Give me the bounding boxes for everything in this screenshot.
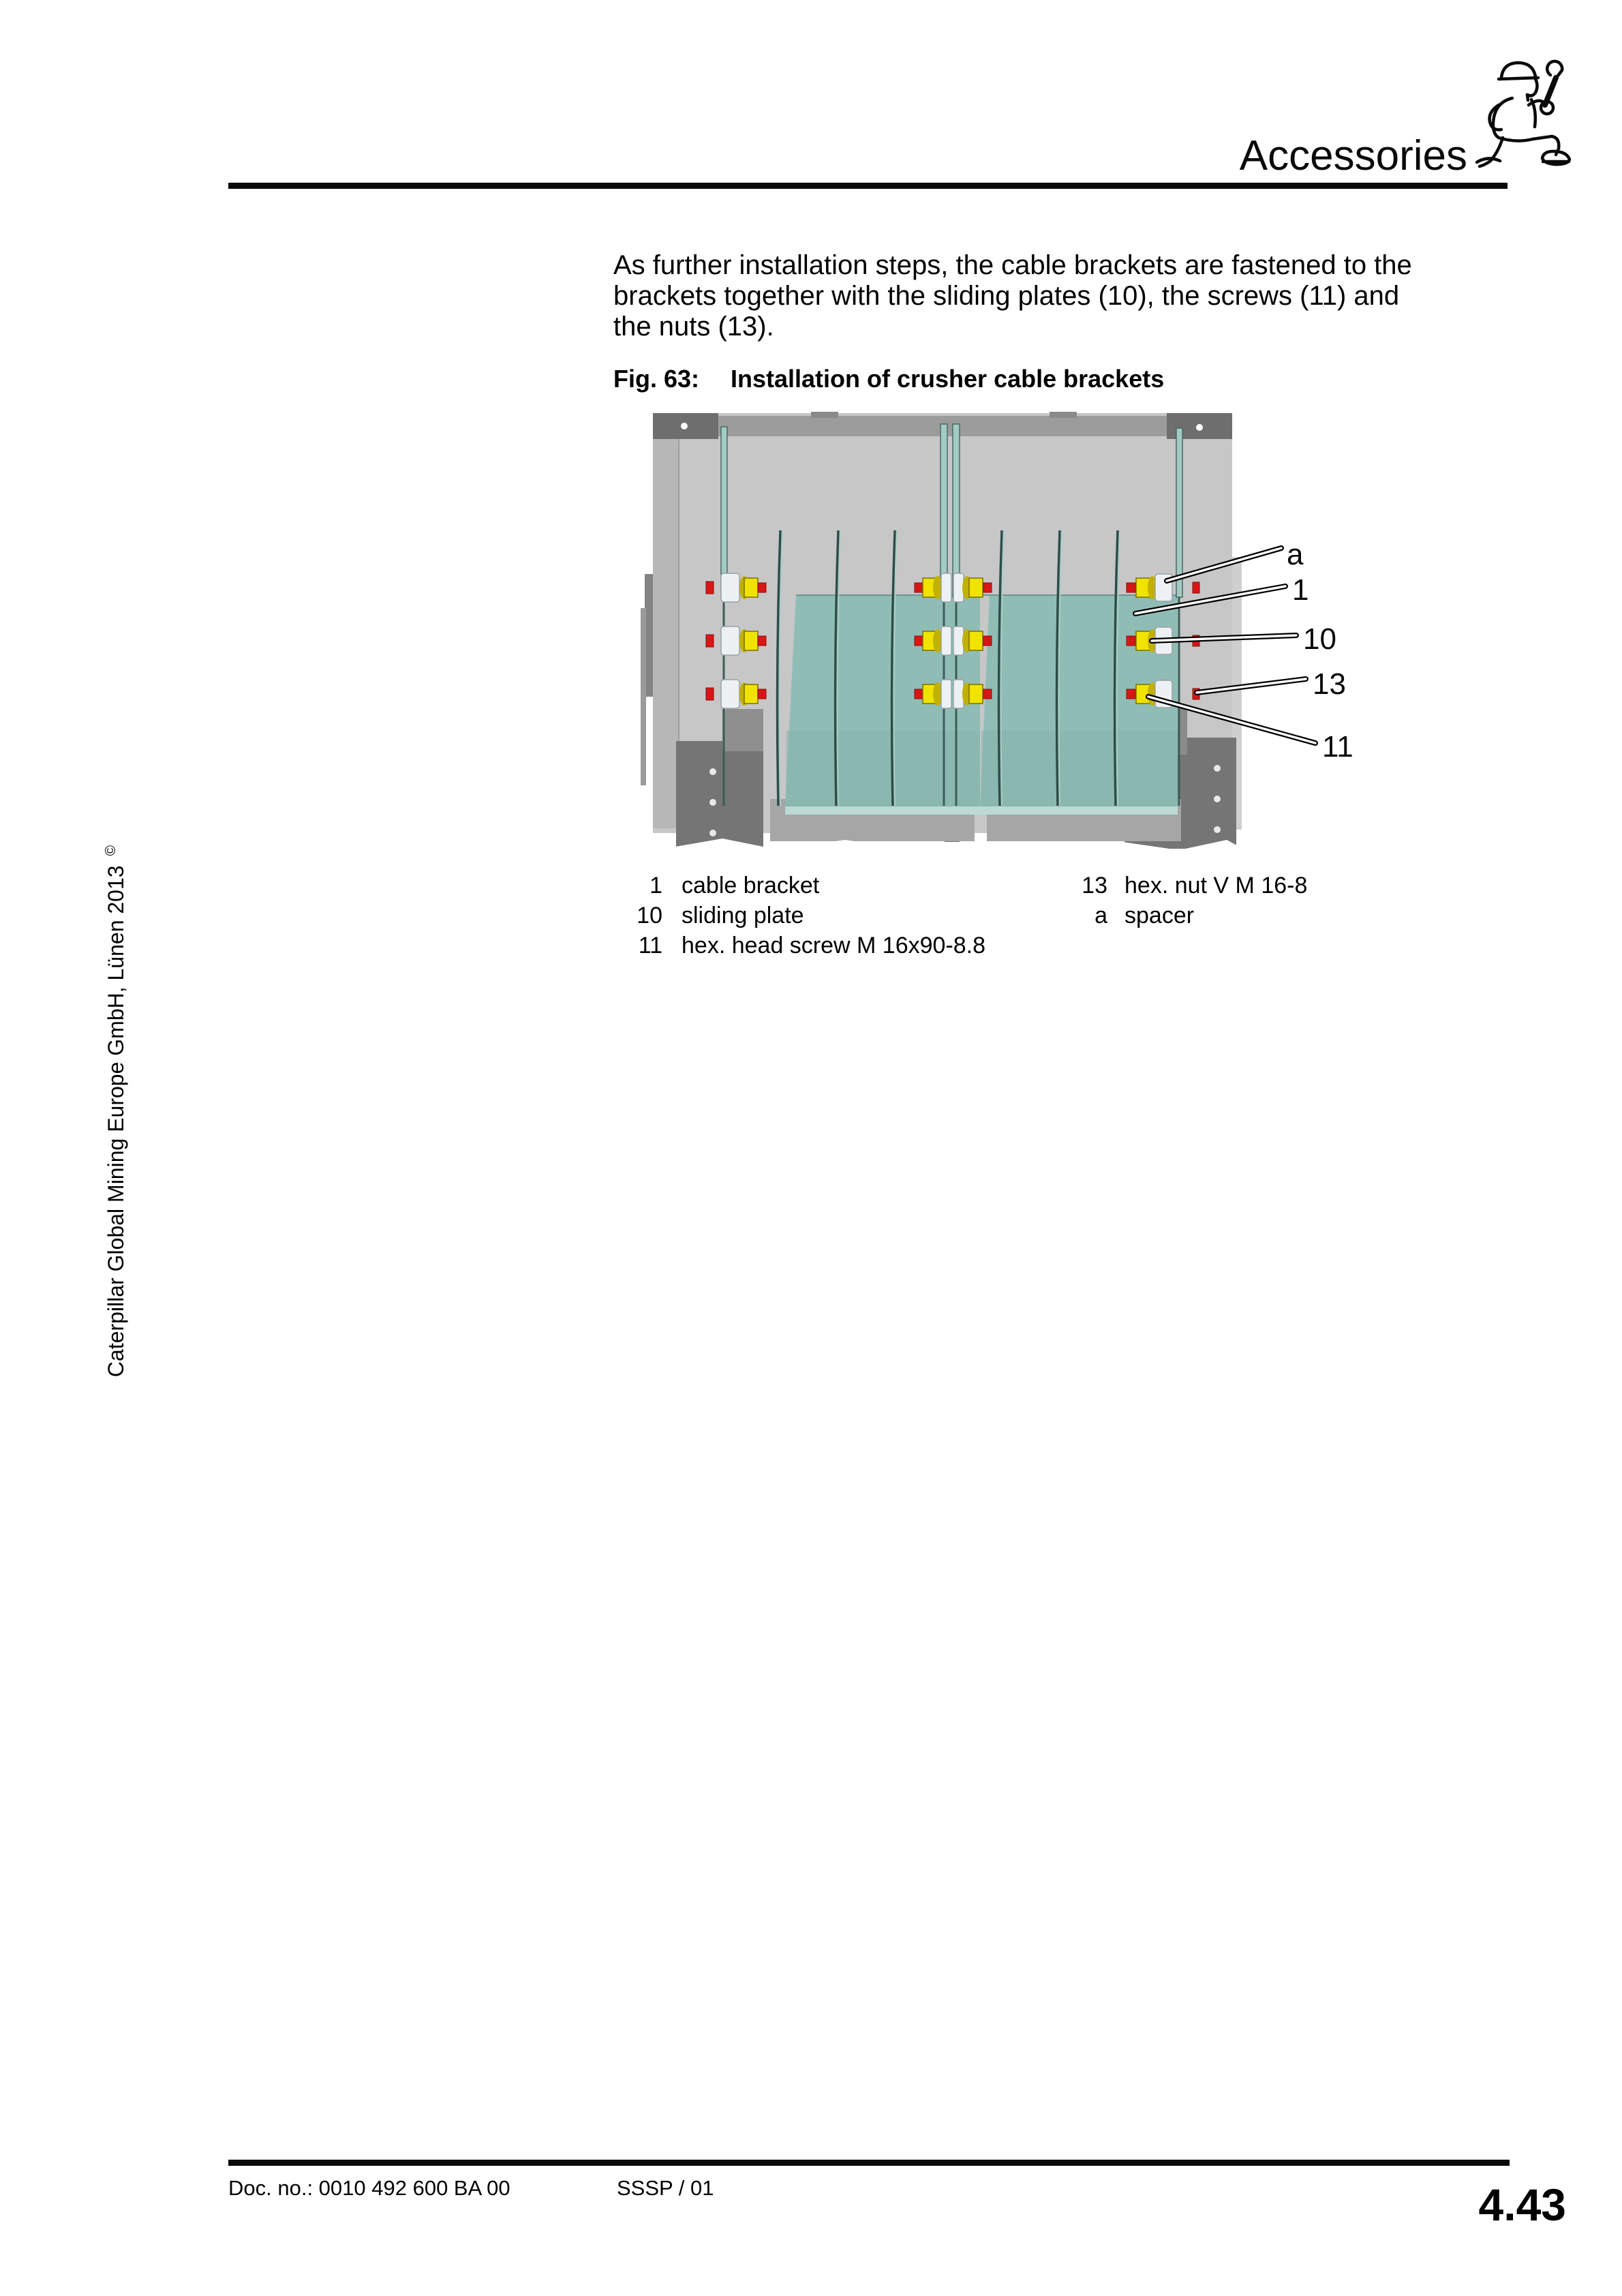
header-rule <box>228 183 1508 189</box>
figure-illustration: a 1 10 13 11 <box>641 404 1370 867</box>
legend-num: 11 <box>624 933 662 958</box>
callout-label-10: 10 <box>1303 622 1336 656</box>
legend-label: cable bracket <box>682 873 819 898</box>
callout-label-1: 1 <box>1292 573 1309 607</box>
callout-label-13: 13 <box>1313 667 1346 701</box>
copyright-symbol: © <box>103 845 119 856</box>
intro-paragraph: As further installation steps, the cable… <box>613 250 1412 342</box>
legend-num: 13 <box>1080 873 1107 898</box>
page-title: Accessories <box>1240 134 1467 178</box>
legend-num: a <box>1080 903 1107 928</box>
page-number: 4.43 <box>1479 2179 1566 2231</box>
figure-caption-label: Fig. 63: <box>613 365 699 393</box>
figure-caption-text: Installation of crusher cable brackets <box>731 365 1164 393</box>
legend-item-1: 1 cable bracket <box>624 873 819 898</box>
legend-item-a: a spacer <box>1080 903 1194 928</box>
legend-item-13: 13 hex. nut V M 16-8 <box>1080 873 1307 898</box>
callout-label-a: a <box>1287 538 1304 571</box>
legend-label: hex. nut V M 16-8 <box>1124 873 1307 898</box>
legend-label: hex. head screw M 16x90-8.8 <box>682 933 985 958</box>
manual-page: Accessories As further installation step… <box>0 0 1622 2296</box>
legend-item-10: 10 sliding plate <box>624 903 804 928</box>
legend-num: 1 <box>624 873 662 898</box>
worker-with-wrench-icon <box>1474 59 1573 169</box>
intro-line-3: the nuts (13). <box>613 312 1412 342</box>
intro-line-1: As further installation steps, the cable… <box>613 250 1412 281</box>
doc-code: SSSP / 01 <box>617 2176 714 2201</box>
intro-line-2: brackets together with the sliding plate… <box>613 281 1412 312</box>
legend-label: sliding plate <box>682 903 804 928</box>
copyright-imprint: Caterpillar Global Mining Europe GmbH, L… <box>103 845 129 1377</box>
footer-rule <box>228 2160 1510 2166</box>
callout-label-11: 11 <box>1322 730 1353 764</box>
copyright-text: Caterpillar Global Mining Europe GmbH, L… <box>104 865 128 1377</box>
doc-number: Doc. no.: 0010 492 600 BA 00 <box>228 2176 510 2201</box>
legend-num: 10 <box>624 903 662 928</box>
legend-item-11: 11 hex. head screw M 16x90-8.8 <box>624 933 985 958</box>
legend-label: spacer <box>1124 903 1194 928</box>
